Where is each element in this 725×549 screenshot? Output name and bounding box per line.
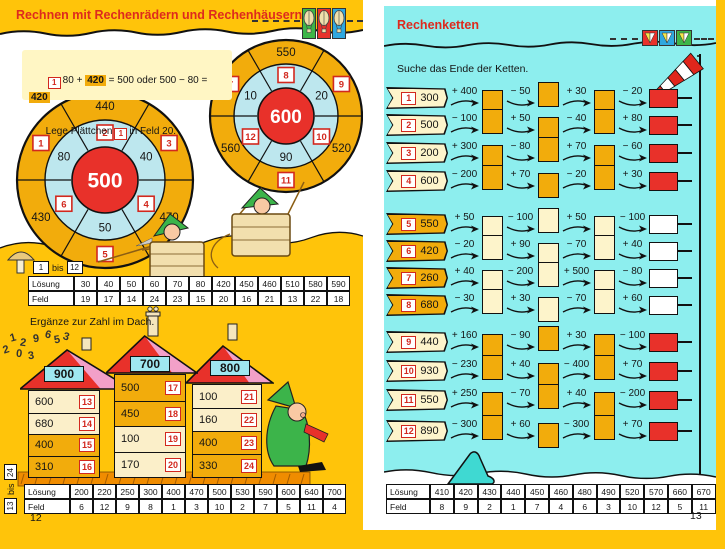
range-word: bis — [52, 263, 64, 273]
chain-operation: − 50 — [504, 87, 537, 109]
solution-table-houses: Lösung2002202503004004705005305906006407… — [24, 484, 346, 514]
chain-row: 3200+ 300− 80+ 70− 60 — [386, 138, 702, 168]
example-text: Lege Plättchen — [46, 126, 113, 137]
operation-label: − 70 — [567, 240, 587, 250]
house-row: 40015 — [29, 434, 99, 456]
roof-target-number: 900 — [44, 366, 84, 382]
arrow-icon — [618, 277, 648, 289]
table-cell: 17 — [97, 291, 120, 306]
arrow-icon — [618, 97, 648, 109]
chain-end-box[interactable] — [649, 172, 678, 191]
chain-start-value: 600 — [420, 175, 438, 187]
chain-operation: − 100 — [616, 331, 649, 353]
wheel-sector-value: 430 — [31, 212, 50, 224]
chain-operation: − 20 — [560, 170, 593, 192]
house-row-value: 450 — [115, 408, 139, 420]
arrow-icon — [618, 152, 648, 164]
balloon-icon — [302, 8, 316, 39]
operation-label: + 60 — [623, 294, 643, 304]
table-cell: 23 — [166, 291, 189, 306]
operation-label: + 70 — [623, 360, 643, 370]
plaettchen-chip: 16 — [79, 460, 95, 474]
operation-label: + 30 — [567, 331, 587, 341]
table-row-label: Lösung — [28, 276, 74, 291]
table-cell: 6 — [573, 499, 597, 514]
page-title-right: Rechenketten — [397, 18, 479, 32]
series-logo-kites — [642, 30, 692, 46]
house-row-value: 310 — [29, 461, 53, 473]
chain-operation: − 60 — [616, 142, 649, 164]
operation-label: + 50 — [511, 114, 531, 124]
operation-label: − 60 — [623, 142, 643, 152]
table-cell: 70 — [166, 276, 189, 291]
table-cell: 590 — [254, 484, 277, 499]
plaettchen-chip: 24 — [241, 459, 257, 473]
table-cell: 4 — [549, 499, 573, 514]
operation-label: − 80 — [511, 142, 531, 152]
chain-operation: + 60 — [616, 294, 649, 316]
arrow-icon — [506, 250, 536, 262]
arrow-icon — [562, 180, 592, 192]
flag-content: 1300 — [386, 87, 448, 109]
chain-operation: + 50 — [560, 213, 593, 235]
chain-operation: − 20 — [448, 240, 481, 262]
table-cell: 7 — [254, 499, 277, 514]
arrow-icon — [562, 341, 592, 353]
table-cell: 530 — [231, 484, 254, 499]
house-row: 68014 — [29, 413, 99, 435]
chain-operation: − 100 — [448, 114, 481, 136]
chain-answer-box[interactable] — [482, 392, 503, 417]
house-row: 10019 — [115, 426, 185, 452]
operation-label: − 80 — [623, 267, 643, 277]
pole-connector-line — [678, 152, 692, 154]
plaettchen-chip: 2 — [401, 119, 416, 132]
operation-label: + 160 — [452, 331, 477, 341]
operation-label: + 500 — [564, 267, 589, 277]
plaettchen-chip: 4 — [401, 175, 416, 188]
pole-connector-line — [678, 370, 692, 372]
table-cell: 220 — [93, 484, 116, 499]
flag-content: 3200 — [386, 142, 448, 164]
table-cell: 30 — [74, 276, 97, 291]
header-dash — [347, 20, 363, 22]
plaettchen-chip: 8 — [401, 299, 416, 312]
chain-operation: + 300 — [448, 142, 481, 164]
table-cell: 490 — [597, 484, 621, 499]
chain-start-value: 500 — [420, 119, 438, 131]
operation-label: + 40 — [623, 240, 643, 250]
table-cell: 24 — [143, 291, 166, 306]
example-box: 180 + 420 = 500 oder 500 − 80 = 420 Lege… — [22, 50, 232, 100]
chain-operation: + 40 — [616, 240, 649, 262]
operation-label: − 230 — [452, 360, 477, 370]
arrow-icon — [618, 304, 648, 316]
chain-row: 7260+ 40− 200+ 500− 80 — [386, 263, 702, 293]
table-cell: 50 — [120, 276, 143, 291]
table-cell: 450 — [235, 276, 258, 291]
wheel-sector-value: 560 — [221, 143, 240, 155]
arrow-icon — [450, 277, 480, 289]
chain-start-value: 550 — [420, 218, 438, 230]
arrow-icon — [562, 124, 592, 136]
table-cell: 1 — [162, 499, 185, 514]
chain-end-box[interactable] — [649, 422, 678, 441]
chain-flag: 7260 — [386, 267, 448, 289]
chain-flag: 2500 — [386, 114, 448, 136]
operation-label: + 70 — [623, 420, 643, 430]
house-rows: 60013680144001531016 — [28, 390, 100, 478]
flag-content: 5550 — [386, 213, 448, 235]
house-row-value: 500 — [115, 382, 139, 394]
chain-flag: 6420 — [386, 240, 448, 262]
balloon-icon — [332, 8, 346, 39]
chain-operation: + 40 — [504, 360, 537, 382]
pole-connector-line — [678, 399, 692, 401]
table-cell: 11 — [300, 499, 323, 514]
chain-operation: + 30 — [560, 331, 593, 353]
chain-operation: − 80 — [616, 267, 649, 289]
arrow-icon — [618, 341, 648, 353]
operation-label: − 20 — [455, 240, 475, 250]
range-from: 1 — [33, 261, 49, 274]
chain-operation: − 200 — [616, 389, 649, 411]
chain-answer-box[interactable] — [482, 415, 503, 440]
chain-answer-box[interactable] — [594, 392, 615, 417]
operation-label: − 70 — [511, 389, 531, 399]
operation-label: + 50 — [567, 213, 587, 223]
wheel-sector-value: 550 — [276, 47, 295, 59]
header-dash — [252, 20, 300, 22]
plaettchen-chip: 14 — [79, 417, 95, 431]
chain-start-value: 930 — [420, 365, 438, 377]
operation-label: + 70 — [567, 142, 587, 152]
table-cell: 40 — [97, 276, 120, 291]
page-gutter — [363, 0, 384, 530]
table-cell: 5 — [277, 499, 300, 514]
right-page: Rechenketten Suche das Ende der Ketten. … — [384, 6, 716, 530]
mushroom-art — [8, 252, 34, 273]
operation-label: − 40 — [567, 114, 587, 124]
chain-operation: + 30 — [616, 170, 649, 192]
arrow-icon — [506, 277, 536, 289]
plaettchen-chip: 11 — [401, 394, 416, 407]
table-cell: 15 — [189, 291, 212, 306]
chain-row: 1300+ 400− 50+ 30− 20 — [386, 83, 702, 113]
house-row-value: 170 — [115, 459, 139, 471]
chain-answer-box[interactable] — [538, 384, 559, 409]
chain-row: 8680− 30+ 30− 70+ 60 — [386, 290, 702, 320]
arrow-icon — [450, 97, 480, 109]
chain-operation: − 200 — [448, 170, 481, 192]
chain-operation: + 40 — [560, 389, 593, 411]
chain-end-box[interactable] — [649, 362, 678, 381]
solution-table-wheels: Lösung304050607080420450460510580590Feld… — [28, 276, 350, 306]
pole-connector-line — [678, 250, 692, 252]
pole-connector-line — [678, 223, 692, 225]
chain-answer-box[interactable] — [538, 326, 559, 351]
example-highlight: 420 — [29, 92, 50, 103]
chain-operation: + 70 — [616, 360, 649, 382]
chain-answer-box[interactable] — [538, 423, 559, 448]
chain-end-box[interactable] — [649, 215, 678, 234]
arrow-icon — [450, 399, 480, 411]
table-cell: 3 — [185, 499, 208, 514]
chain-answer-box[interactable] — [594, 235, 615, 260]
page-number-left: 12 — [30, 512, 42, 524]
table-cell: 430 — [478, 484, 502, 499]
operation-label: − 30 — [455, 294, 475, 304]
arrow-icon — [506, 399, 536, 411]
chain-operation: + 60 — [504, 420, 537, 442]
chain-answer-box[interactable] — [538, 137, 559, 162]
doodle-hat — [448, 452, 494, 484]
chain-row: 11550+ 250− 70+ 40− 200 — [386, 385, 702, 415]
chain-operation: − 230 — [448, 360, 481, 382]
chain-answer-box[interactable] — [482, 289, 503, 314]
table-cell: 21 — [258, 291, 281, 306]
chain-flag: 5550 — [386, 213, 448, 235]
table-cell: 520 — [620, 484, 644, 499]
arrow-icon — [562, 250, 592, 262]
table-cell: 600 — [277, 484, 300, 499]
operation-label: − 200 — [452, 170, 477, 180]
pole-connector-line — [678, 430, 692, 432]
house-row-value: 100 — [193, 391, 217, 403]
chain-answer-box[interactable] — [538, 173, 559, 198]
book-spread: 5004403470543012404506806005509520115607… — [0, 0, 725, 549]
range-to: 12 — [67, 261, 83, 274]
table-cell: 510 — [281, 276, 304, 291]
flag-content: 6420 — [386, 240, 448, 262]
plaettchen-chip: 20 — [165, 458, 181, 472]
chain-operation: + 40 — [448, 267, 481, 289]
arrow-icon — [562, 399, 592, 411]
operation-label: + 90 — [511, 240, 531, 250]
svg-text:6: 6 — [61, 199, 66, 210]
table-cell: 9 — [116, 499, 139, 514]
table-cell: 12 — [644, 499, 668, 514]
chain-flag: 12890 — [386, 420, 448, 442]
svg-text:4: 4 — [143, 199, 149, 210]
svg-text:8: 8 — [283, 71, 288, 82]
arrow-icon — [450, 370, 480, 382]
house-row-value: 330 — [193, 460, 217, 472]
svg-text:11: 11 — [281, 176, 292, 187]
chain-end-box[interactable] — [649, 116, 678, 135]
chain-end-box[interactable] — [649, 242, 678, 261]
chain-operation: − 20 — [616, 87, 649, 109]
table-cell: 60 — [143, 276, 166, 291]
table-cell: 14 — [120, 291, 143, 306]
series-logo-balloons — [302, 8, 346, 39]
chain-flag: 10930 — [386, 360, 448, 382]
operation-label: + 400 — [452, 87, 477, 97]
flag-content: 7260 — [386, 267, 448, 289]
chain-operation: − 70 — [504, 389, 537, 411]
range-from: 13 — [4, 498, 17, 514]
pole-connector-line — [678, 124, 692, 126]
pole-connector-line — [678, 277, 692, 279]
table-cell: 500 — [208, 484, 231, 499]
chain-answer-box[interactable] — [482, 109, 503, 134]
arrow-icon — [618, 124, 648, 136]
arrow-icon — [562, 304, 592, 316]
houses-heading: Ergänze zur Zahl im Dach. — [30, 316, 154, 328]
arrow-icon — [450, 250, 480, 262]
operation-label: + 60 — [511, 420, 531, 430]
chain-answer-box[interactable] — [482, 355, 503, 380]
arrow-icon — [562, 430, 592, 442]
plaettchen-chip: 5 — [401, 218, 416, 231]
house-row-value: 100 — [115, 433, 139, 445]
table-cell: 2 — [231, 499, 254, 514]
house-rows: 10021160224002333024 — [192, 384, 262, 478]
table-row-label: Feld — [386, 499, 430, 514]
table-cell: 9 — [454, 499, 478, 514]
arrow-icon — [506, 341, 536, 353]
chain-operation: + 70 — [504, 170, 537, 192]
table-cell: 1 — [501, 499, 525, 514]
plaettchen-chip: 17 — [165, 381, 181, 395]
header-dash — [610, 38, 638, 40]
chain-end-box[interactable] — [649, 269, 678, 288]
rechenrad-600: 600550952011560782010901210 — [210, 40, 362, 192]
chain-operation: + 30 — [504, 294, 537, 316]
kite-icon — [659, 30, 675, 46]
chain-answer-box[interactable] — [538, 262, 559, 287]
flag-content: 12890 — [386, 420, 448, 442]
plaettchen-chip: 21 — [241, 390, 257, 404]
operation-label: − 300 — [452, 420, 477, 430]
chain-end-box[interactable] — [649, 333, 678, 352]
table-row-label: Lösung — [24, 484, 70, 499]
arrow-icon — [450, 223, 480, 235]
chain-answer-box[interactable] — [594, 355, 615, 380]
table-cell: 590 — [327, 276, 350, 291]
chain-operation: − 100 — [504, 213, 537, 235]
table-cell: 670 — [692, 484, 716, 499]
house-row-value: 600 — [29, 396, 53, 408]
plaettchen-chip: 13 — [79, 395, 95, 409]
house-row-value: 400 — [29, 439, 53, 451]
table-cell: 470 — [185, 484, 208, 499]
house-row: 50017 — [115, 375, 185, 401]
chain-end-box[interactable] — [649, 391, 678, 410]
table-cell: 12 — [93, 499, 116, 514]
wheel-sector-value: 50 — [99, 223, 112, 235]
chain-end-box[interactable] — [649, 296, 678, 315]
chain-flag: 9440 — [386, 331, 448, 353]
chain-answer-box[interactable] — [594, 165, 615, 190]
table-cell: 18 — [327, 291, 350, 306]
arrow-icon — [506, 152, 536, 164]
table-cell: 8 — [430, 499, 454, 514]
pole-connector-line — [678, 97, 692, 99]
chain-answer-box[interactable] — [538, 82, 559, 107]
operation-label: − 200 — [508, 267, 533, 277]
chain-operation: + 250 — [448, 389, 481, 411]
plaettchen-chip: 23 — [241, 436, 257, 450]
table-cell: 420 — [212, 276, 235, 291]
chain-row: 4600− 200+ 70− 20+ 30 — [386, 166, 702, 196]
chain-start-value: 440 — [420, 336, 438, 348]
range-word: bis — [6, 483, 16, 495]
plaettchen-chip: 12 — [401, 425, 416, 438]
chain-end-box[interactable] — [649, 144, 678, 163]
chain-operation: − 300 — [448, 420, 481, 442]
chain-operation: − 40 — [560, 114, 593, 136]
range-to: 24 — [4, 464, 17, 480]
operation-label: + 80 — [623, 114, 643, 124]
chain-operation: − 70 — [560, 240, 593, 262]
gnome-art — [267, 382, 328, 472]
chain-start-value: 550 — [420, 394, 438, 406]
house-row: 16022 — [193, 408, 261, 431]
roof-target-number: 800 — [210, 360, 250, 376]
svg-text:10: 10 — [316, 132, 327, 143]
table-cell: 200 — [70, 484, 93, 499]
chip-range-label: 1 bis 12 — [33, 261, 83, 274]
chain-flag: 1300 — [386, 87, 448, 109]
house-row: 45018 — [115, 401, 185, 427]
arrow-icon — [618, 430, 648, 442]
house-row: 10021 — [193, 385, 261, 408]
chain-answer-box[interactable] — [538, 297, 559, 322]
chain-answer-box[interactable] — [482, 165, 503, 190]
chain-answer-box[interactable] — [594, 415, 615, 440]
arrow-icon — [450, 341, 480, 353]
chain-answer-box[interactable] — [594, 109, 615, 134]
pole-connector-line — [678, 304, 692, 306]
arrow-icon — [506, 180, 536, 192]
arrow-icon — [506, 223, 536, 235]
plaettchen-chip: 1 — [48, 77, 61, 89]
arrow-icon — [450, 124, 480, 136]
arrow-icon — [450, 430, 480, 442]
plaettchen-chip: 19 — [165, 432, 181, 446]
flag-content: 9440 — [386, 331, 448, 353]
table-cell: 400 — [162, 484, 185, 499]
chain-answer-box[interactable] — [538, 208, 559, 233]
house-row: 40023 — [193, 431, 261, 454]
chain-operation: − 80 — [504, 142, 537, 164]
operation-label: − 200 — [620, 389, 645, 399]
example-text: 80 + — [63, 75, 86, 86]
table-cell: 460 — [258, 276, 281, 291]
operation-label: + 70 — [511, 170, 531, 180]
flag-content: 10930 — [386, 360, 448, 382]
chain-answer-box[interactable] — [594, 289, 615, 314]
chain-operation: + 400 — [448, 87, 481, 109]
operation-label: + 300 — [452, 142, 477, 152]
chain-end-box[interactable] — [649, 89, 678, 108]
chain-start-value: 260 — [420, 272, 438, 284]
svg-text:9: 9 — [339, 80, 344, 91]
chain-flag: 8680 — [386, 294, 448, 316]
house-row: 60013 — [29, 391, 99, 413]
task-instruction: Suche das Ende der Ketten. — [397, 63, 528, 75]
arrow-icon — [562, 223, 592, 235]
chain-operation: − 30 — [448, 294, 481, 316]
plaettchen-chip: 9 — [401, 336, 416, 349]
wheel-sector-value: 440 — [95, 101, 114, 113]
table-cell: 5 — [668, 499, 692, 514]
balloon-icon — [317, 8, 331, 39]
page-number-right: 13 — [690, 510, 702, 522]
operation-label: − 20 — [567, 170, 587, 180]
chain-answer-box[interactable] — [482, 235, 503, 260]
